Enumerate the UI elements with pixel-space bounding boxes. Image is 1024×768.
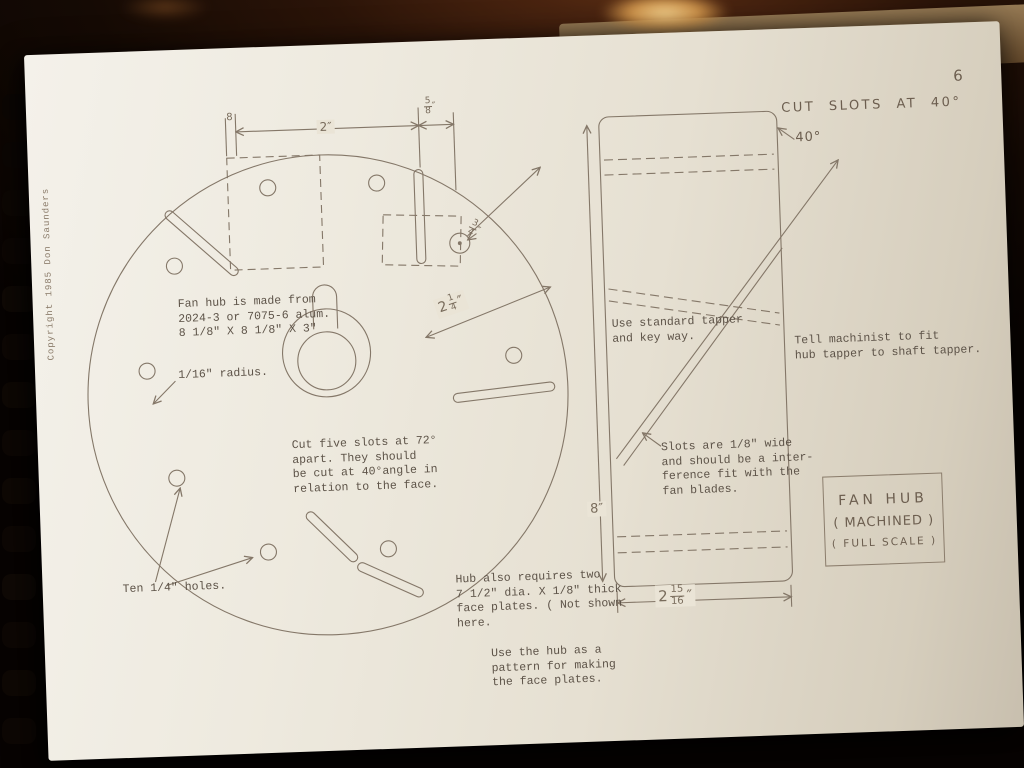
dim-8-label: 8 <box>226 112 233 123</box>
leader-arrows <box>148 379 253 586</box>
slot-note-leader <box>643 432 661 447</box>
tapper-note: Use standard tapper and key way. <box>612 313 744 347</box>
fan-blade-slots <box>162 165 562 607</box>
photo-background: Copyright 1985 Don Saunders 6 8 2″ 58 ″ … <box>0 0 1024 768</box>
page-number: 6 <box>953 66 963 84</box>
dim-5-8-label: 58 ″ <box>424 97 436 117</box>
hub-face-view <box>78 103 576 643</box>
hub-outline-circle <box>80 147 576 643</box>
title-box: FAN HUB ( MACHINED ) ( FULL SCALE ) <box>822 472 945 566</box>
book-page: Copyright 1985 Don Saunders 6 8 2″ 58 ″ … <box>24 21 1024 761</box>
dim-height-label: 8″ <box>587 501 607 517</box>
face-plates-note: Hub also requires two 7 1/2" dia. X 1/8"… <box>455 568 623 632</box>
angle-leader <box>778 127 794 140</box>
angle-label: 40° <box>795 129 822 145</box>
pattern-note: Use the hub as a pattern for making the … <box>491 643 617 691</box>
slot-width-note: Slots are 1/8" wide and should be a inte… <box>661 436 815 499</box>
title-line-2: ( MACHINED ) <box>833 512 934 531</box>
slots-note: Cut five slots at 72° apart. They should… <box>292 434 439 497</box>
title-line-1: FAN HUB <box>838 489 928 508</box>
side-dimension-lines <box>587 119 792 613</box>
three-quarter-hole <box>447 167 543 253</box>
side-view-outline <box>598 111 792 587</box>
title-line-3: ( FULL SCALE ) <box>832 534 938 550</box>
material-note: Fan hub is made from 2024-3 or 7075-6 al… <box>178 293 331 342</box>
top-dimension-lines <box>225 106 456 198</box>
light-glare <box>120 0 210 20</box>
dim-2-inch-label: 2″ <box>316 119 335 134</box>
dashed-blank-outline <box>227 150 463 274</box>
dim-width-label: 2 1516 ″ <box>655 584 696 607</box>
